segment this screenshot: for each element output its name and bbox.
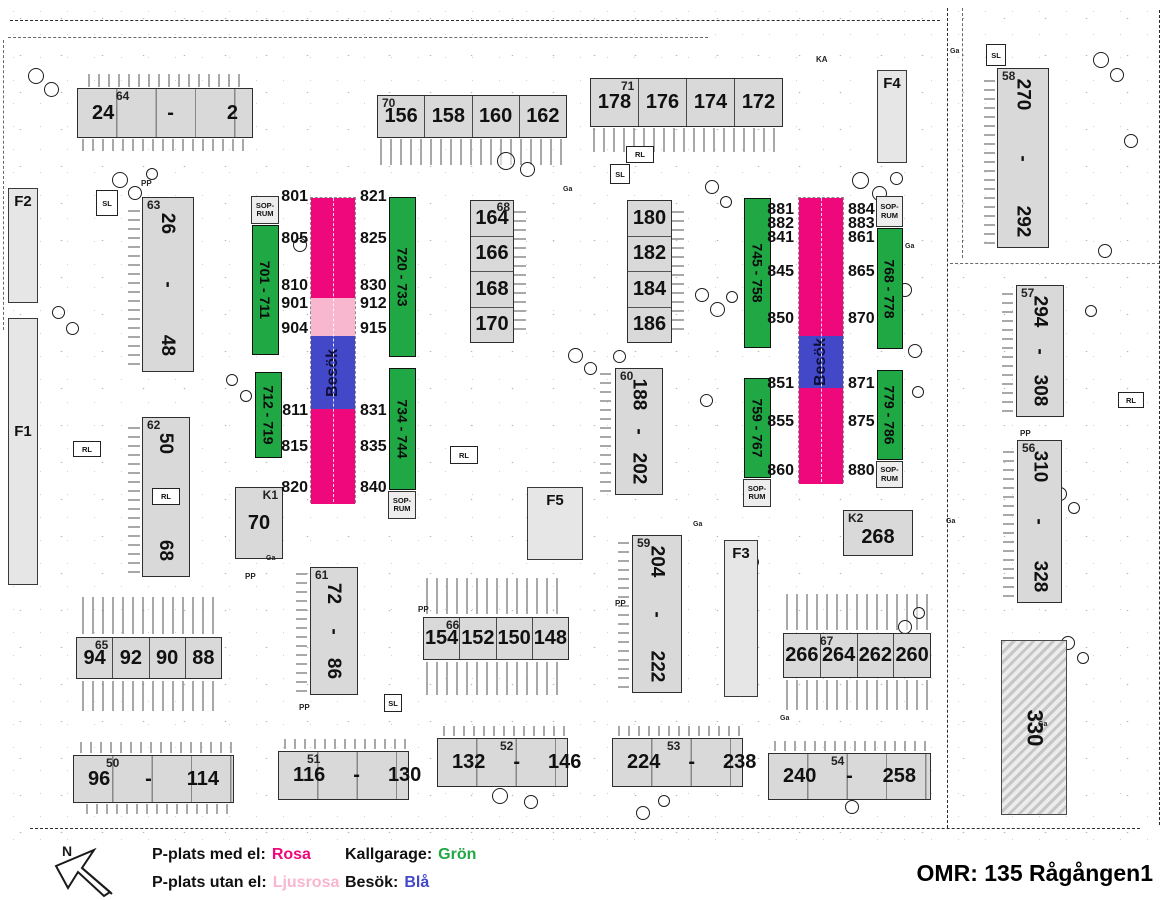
unit-number: 184 <box>628 271 671 307</box>
rl-marker: RL <box>152 488 180 505</box>
soprum-box: SOP-RUM <box>876 196 903 227</box>
unit-number: 86 <box>324 658 343 679</box>
tree-icon <box>1077 652 1089 664</box>
building-id: 62 <box>147 419 160 431</box>
tree-icon <box>568 348 583 363</box>
carport-row <box>593 128 781 152</box>
building-id: F4 <box>883 75 901 162</box>
carport-row <box>786 680 932 710</box>
pp-label: PP <box>418 606 429 614</box>
building-id: K2 <box>848 512 863 524</box>
building-id: 63 <box>147 199 160 211</box>
soprum-box: SOP-RUM <box>388 491 416 519</box>
legend-value-ljusrosa: Ljusrosa <box>273 874 340 891</box>
ga-label: Ga <box>905 243 914 250</box>
carport-row <box>426 662 566 695</box>
tree-icon <box>913 607 925 619</box>
unit-number: 68 <box>156 540 175 561</box>
parking-spot-number: 801 <box>266 189 308 205</box>
carport-row <box>82 597 218 634</box>
unit-number: 24 <box>78 102 128 125</box>
unit-number: - <box>131 768 166 791</box>
unit-number: 292 <box>1013 206 1032 238</box>
building-63: 63 26 - 48 <box>142 197 194 372</box>
unit-number: 186 <box>628 307 671 343</box>
unit-number: 310 <box>1030 451 1049 483</box>
legend-kallgarage: Kallgarage:Grön <box>345 846 476 864</box>
legend-besok: Besök:Blå <box>345 874 429 892</box>
building-60: 60 188 - 202 <box>615 368 663 495</box>
parking-spot-number: 811 <box>266 403 308 419</box>
unit-number: - <box>499 751 534 774</box>
unit-number: 96 <box>74 768 124 791</box>
unit-number: 176 <box>638 79 686 126</box>
unit-number: 266 <box>784 634 820 677</box>
tree-icon <box>524 795 538 809</box>
tree-icon <box>912 386 924 398</box>
legend-value-gron: Grön <box>438 846 476 863</box>
soprum-box: SOP-RUM <box>743 479 771 507</box>
carport-row <box>774 741 926 751</box>
pp-label: PP <box>141 180 152 188</box>
sl-marker: SL <box>986 44 1006 66</box>
building-f5: F5 <box>527 487 583 560</box>
unit-number: 258 <box>869 765 930 788</box>
site-map: 64 24 - 2 70 156 158 160 162 71 178 176 … <box>0 0 1167 900</box>
ga-label: Ga <box>950 48 959 55</box>
parking-strip-west: Besök <box>310 197 356 503</box>
pp-label: PP <box>1020 430 1031 438</box>
carport-row <box>80 742 232 753</box>
unit-number: 222 <box>647 651 666 683</box>
road-dashed-line <box>1159 10 1160 825</box>
unit-number: 166 <box>471 236 513 272</box>
pp-label: PP <box>245 573 256 581</box>
building-id: F3 <box>732 545 750 696</box>
stairwell-strip <box>600 372 611 492</box>
ga-label: Ga <box>693 521 702 528</box>
parking-spot-number: 850 <box>752 311 794 327</box>
carport-row <box>380 139 566 165</box>
unit-number: - <box>158 281 177 287</box>
unit-number: - <box>832 765 867 788</box>
unit-number: - <box>153 102 188 125</box>
tree-icon <box>613 350 626 363</box>
unit-number: 48 <box>158 335 177 356</box>
unit-number: 168 <box>471 271 513 307</box>
unit-number: 88 <box>185 638 221 678</box>
unit-number: 174 <box>686 79 734 126</box>
building-67: 67 266 264 262 260 <box>783 633 931 678</box>
garage-range: 720 - 733 <box>395 247 411 306</box>
building-id: F5 <box>546 492 564 559</box>
unit-number: 72 <box>324 583 343 604</box>
parking-spot-number: 845 <box>752 264 794 280</box>
unit-number: 26 <box>158 213 177 234</box>
building-51: 51 116 - 130 <box>278 751 409 800</box>
carport-row <box>82 681 220 711</box>
stairwell-strip <box>514 210 526 330</box>
unit-number: 50 <box>156 433 175 454</box>
rl-marker: RL <box>73 441 101 457</box>
building-50: 50 96 - 114 <box>73 755 234 803</box>
carport-row <box>618 726 740 736</box>
unit-number: 148 <box>532 618 568 659</box>
strip-centerline <box>821 198 822 482</box>
parking-spot-number: 901 <box>266 296 308 312</box>
building-58: 58 270 - 292 <box>997 68 1049 248</box>
unit-number: 116 <box>279 764 339 787</box>
ka-label: KA <box>816 56 828 64</box>
parking-spot-number: 841 <box>752 230 794 246</box>
carport-row <box>86 804 232 814</box>
carport-row <box>426 578 566 614</box>
stairwell-strip <box>618 540 629 688</box>
unit-number: 224 <box>613 751 674 774</box>
unit-number: 114 <box>173 768 233 791</box>
building-65: 65 94 92 90 88 <box>76 637 222 679</box>
rl-marker: RL <box>450 446 478 464</box>
carport-row <box>284 739 406 749</box>
building-64: 64 24 - 2 <box>77 88 253 138</box>
building-68: 68 164 166 168 170 <box>470 200 514 343</box>
building-id: 53 <box>653 740 694 752</box>
unit-number: 160 <box>472 96 519 137</box>
building-id: 64 <box>102 90 143 102</box>
stairwell-strip <box>1003 445 1014 597</box>
building-59: 59 204 - 222 <box>632 535 682 693</box>
tree-icon <box>44 82 59 97</box>
unit-number: 188 <box>629 379 648 411</box>
tree-icon <box>240 390 252 402</box>
parking-strip-east: Besök <box>798 197 844 483</box>
unit-number: 162 <box>519 96 566 137</box>
legend-value-bla: Blå <box>404 874 429 891</box>
sl-marker: SL <box>610 164 630 184</box>
pp-label: PP <box>615 600 626 608</box>
stairwell-strip <box>128 203 140 365</box>
unit-number: 172 <box>734 79 782 126</box>
unit-number: 180 <box>628 201 671 236</box>
building-71: 71 178 176 174 172 <box>590 78 783 127</box>
unit-number: 308 <box>1030 375 1049 407</box>
tree-icon <box>1085 305 1097 317</box>
tree-icon <box>898 620 912 634</box>
parking-spot-number: 820 <box>266 480 308 496</box>
ga-label: Ga <box>1038 721 1047 728</box>
unit-number: - <box>324 628 343 634</box>
tree-icon <box>710 302 725 317</box>
unit-number: - <box>1013 155 1032 161</box>
garage-strip-768-778: 768 - 778 <box>877 228 903 349</box>
tree-icon <box>226 374 238 386</box>
unit-number: 202 <box>629 453 648 485</box>
building-180: 180 182 184 186 <box>627 200 672 343</box>
tree-icon <box>1110 68 1124 82</box>
unit-number: 204 <box>647 546 666 578</box>
building-f4: F4 <box>877 70 907 163</box>
tree-icon <box>28 68 44 84</box>
building-f2: F2 <box>8 188 38 303</box>
garage-strip-734-744: 734 - 744 <box>389 368 416 490</box>
garage-range: 768 - 778 <box>882 259 898 318</box>
sl-marker: SL <box>96 190 118 216</box>
parking-spot-number: 810 <box>266 278 308 294</box>
building-id: F1 <box>14 423 32 440</box>
building-id: 68 <box>497 201 510 213</box>
tree-icon <box>852 172 869 189</box>
tree-icon <box>658 795 670 807</box>
tree-icon <box>726 291 738 303</box>
tree-icon <box>636 806 650 820</box>
tree-icon <box>66 322 79 335</box>
building-id: 70 <box>382 97 395 109</box>
parking-spot-number: 815 <box>266 439 308 455</box>
tree-icon <box>695 288 709 302</box>
building-id: 67 <box>820 635 833 647</box>
building-52: 52 132 - 146 <box>437 738 568 787</box>
tree-icon <box>720 196 732 208</box>
building-70: 70 156 158 160 162 <box>377 95 567 138</box>
legend-med-el: P-plats med el:Rosa <box>152 846 311 864</box>
stairwell-strip <box>672 210 684 330</box>
map-title: OMR: 135 Rågången1 <box>917 860 1153 887</box>
road-dashed-line <box>10 20 940 21</box>
building-id: F2 <box>14 193 32 302</box>
parking-spot-number: 851 <box>752 376 794 392</box>
unit-number: 90 <box>149 638 185 678</box>
parking-spot-number: 904 <box>266 321 308 337</box>
tree-icon <box>584 362 597 375</box>
road-dashed-line <box>950 263 1160 264</box>
unit-number: 150 <box>496 618 532 659</box>
building-f1: F1 <box>8 318 38 585</box>
building-56: 56 310 - 328 <box>1017 440 1062 603</box>
tree-icon <box>1098 244 1112 258</box>
garage-range: 779 - 786 <box>882 385 898 444</box>
garage-strip-779-786: 779 - 786 <box>877 370 903 460</box>
unit-number: - <box>647 611 666 617</box>
unit-number: 260 <box>893 634 930 677</box>
sl-marker: SL <box>384 694 402 712</box>
building-k1: K1 70 <box>235 487 283 559</box>
unit-number: - <box>674 751 709 774</box>
unit-number: - <box>1030 348 1049 354</box>
tree-icon <box>128 186 142 200</box>
unit-number: 328 <box>1030 561 1049 593</box>
carport-row <box>88 74 240 87</box>
unit-number: - <box>629 428 648 434</box>
unit-number: 182 <box>628 236 671 272</box>
north-arrow-icon: N <box>48 842 148 900</box>
tree-icon <box>1124 134 1138 148</box>
ga-label: Ga <box>563 186 572 193</box>
tree-icon <box>112 172 128 188</box>
tree-icon <box>52 306 65 319</box>
building-330: 330 <box>1001 640 1067 815</box>
carport-row <box>443 726 565 736</box>
stairwell-strip <box>128 423 140 573</box>
north-label: N <box>62 843 72 859</box>
parking-spot-number: 860 <box>752 463 794 479</box>
building-61: 61 72 - 86 <box>310 567 358 695</box>
unit-number: 238 <box>709 751 770 774</box>
building-id: 61 <box>315 569 328 581</box>
unit-number: - <box>339 764 374 787</box>
unit-number: 158 <box>424 96 471 137</box>
road-dashed-line <box>3 40 4 330</box>
unit-number: 130 <box>374 764 435 787</box>
soprum-box: SOP-RUM <box>876 461 903 488</box>
tree-icon <box>700 394 713 407</box>
road-dashed-line <box>962 8 963 258</box>
building-id: 50 <box>92 757 133 769</box>
tree-icon <box>705 180 719 194</box>
building-k2: K2 268 <box>843 510 913 556</box>
garage-strip-720-733: 720 - 733 <box>389 197 416 357</box>
building-f3: F3 <box>724 540 758 697</box>
building-id: 66 <box>446 619 459 631</box>
unit-number: 92 <box>112 638 148 678</box>
tree-icon <box>845 800 859 814</box>
tree-icon <box>520 162 535 177</box>
rl-marker: RL <box>1118 392 1144 408</box>
unit-number: 270 <box>1013 79 1032 111</box>
tree-icon <box>1093 52 1109 68</box>
building-57: 57 294 - 308 <box>1016 285 1064 417</box>
building-id: 52 <box>486 740 527 752</box>
stairwell-strip <box>984 74 995 244</box>
building-id: 71 <box>621 80 634 92</box>
unit-number: 170 <box>471 307 513 343</box>
stairwell-strip <box>1002 290 1013 412</box>
pp-label: PP <box>299 704 310 712</box>
strip-centerline <box>333 198 334 502</box>
unit-number: 262 <box>857 634 894 677</box>
building-66: 66 154 152 150 148 <box>423 617 569 660</box>
unit-number: 146 <box>534 751 595 774</box>
building-53: 53 224 - 238 <box>612 738 743 787</box>
ga-label: Ga <box>266 555 275 562</box>
building-54: 54 240 - 258 <box>768 753 931 800</box>
tree-icon <box>492 788 508 804</box>
tree-icon <box>1068 502 1080 514</box>
tree-icon <box>890 172 903 185</box>
unit-number: 240 <box>769 765 830 788</box>
ga-label: Ga <box>946 518 955 525</box>
parking-spot-number: 855 <box>752 414 794 430</box>
garage-range: 734 - 744 <box>395 399 411 458</box>
parking-spot-number: 805 <box>266 231 308 247</box>
ga-label: Ga <box>780 715 789 722</box>
carport-row <box>82 139 250 151</box>
rl-marker: RL <box>626 146 654 163</box>
legend-value-rosa: Rosa <box>272 846 311 863</box>
building-id: 51 <box>293 753 334 765</box>
unit-number: - <box>1030 518 1049 524</box>
tree-icon <box>497 152 515 170</box>
stairwell-strip <box>296 570 307 692</box>
building-id: 65 <box>95 639 108 651</box>
legend-utan-el: P-plats utan el:Ljusrosa <box>152 874 339 892</box>
unit-number: 2 <box>213 102 252 125</box>
road-dashed-line <box>30 828 1140 829</box>
tree-icon <box>908 344 922 358</box>
road-dashed-line <box>947 8 948 828</box>
unit-number: 152 <box>459 618 495 659</box>
road-dashed-line <box>8 37 708 38</box>
building-id: 54 <box>817 755 858 767</box>
unit-number: 132 <box>438 751 499 774</box>
unit-number: 294 <box>1030 296 1049 328</box>
